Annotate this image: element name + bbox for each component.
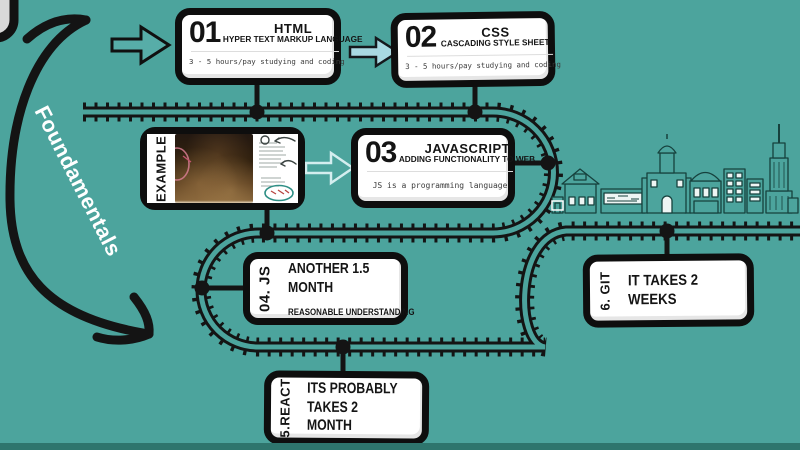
step-title: HTML	[220, 22, 365, 36]
step-card-html: 01 HTML HYPER TEXT MARKUP LANGUAGE 3 - 5…	[175, 8, 341, 85]
step-subtitle: ADDING FUNCTIONALITY TO WEB	[399, 155, 535, 164]
image-markup-circle-icon	[175, 134, 253, 203]
example-card: EXAMPLE	[140, 127, 305, 210]
step-side-label: 5.REACT	[271, 377, 299, 437]
handwritten-annotations	[253, 134, 298, 203]
step-card-git: 6. GIT IT TAKES 2 WEEKS	[583, 253, 755, 327]
infographic-roadmap: Foundamentals 01 HTML HYPER TEXT MARKUP …	[0, 0, 800, 450]
example-label: EXAMPLE	[147, 134, 175, 203]
example-image	[175, 134, 253, 203]
step-number: 03	[365, 138, 396, 168]
divider	[407, 54, 553, 57]
step-note: JS is a programming language	[365, 181, 515, 190]
step-number: 01	[189, 18, 220, 48]
step-title: ITS PROBABLY TAKES 2 MONTH	[307, 380, 398, 437]
step-card-css: 02 CSS CASCADING STYLE SHEET 3 - 5 hours…	[390, 11, 555, 88]
step-subtitle: CASCADING STYLE SHEET	[439, 38, 553, 49]
step-side-label: 04. JS	[250, 259, 280, 318]
step-subtitle: HYPER TEXT MARKUP LANGUAGE	[223, 35, 363, 44]
step-number: 02	[405, 23, 437, 53]
step-side-label: 6. GIT	[590, 261, 621, 320]
step-title: IT TAKES 2 WEEKS	[628, 271, 730, 309]
step-note: 3 - 5 hours/pay studying and coding	[405, 60, 555, 71]
step-card-react: 5.REACT ITS PROBABLY TAKES 2 MONTH	[264, 370, 430, 445]
flow-arrow-example-to-js-icon	[306, 153, 353, 183]
divider	[367, 171, 513, 172]
bottom-strip	[0, 443, 800, 450]
step-card-javascript: 03 JAVASCRIPT ADDING FUNCTIONALITY TO WE…	[351, 128, 515, 208]
step-note: REASONABLE UNDERSTANDING	[288, 307, 415, 317]
step-card-js-practice: 04. JS ANOTHER 1.5 MONTH REASONABLE UNDE…	[243, 252, 408, 325]
flow-arrow-start-icon	[112, 27, 169, 63]
step-title: JAVASCRIPT	[396, 142, 538, 156]
step-title: ANOTHER 1.5 MONTH	[288, 260, 403, 298]
offscreen-card-corner	[0, 0, 14, 38]
step-note: 3 - 5 hours/pay studying and coding	[189, 57, 341, 66]
city-skyline	[552, 124, 798, 213]
divider	[191, 51, 339, 52]
